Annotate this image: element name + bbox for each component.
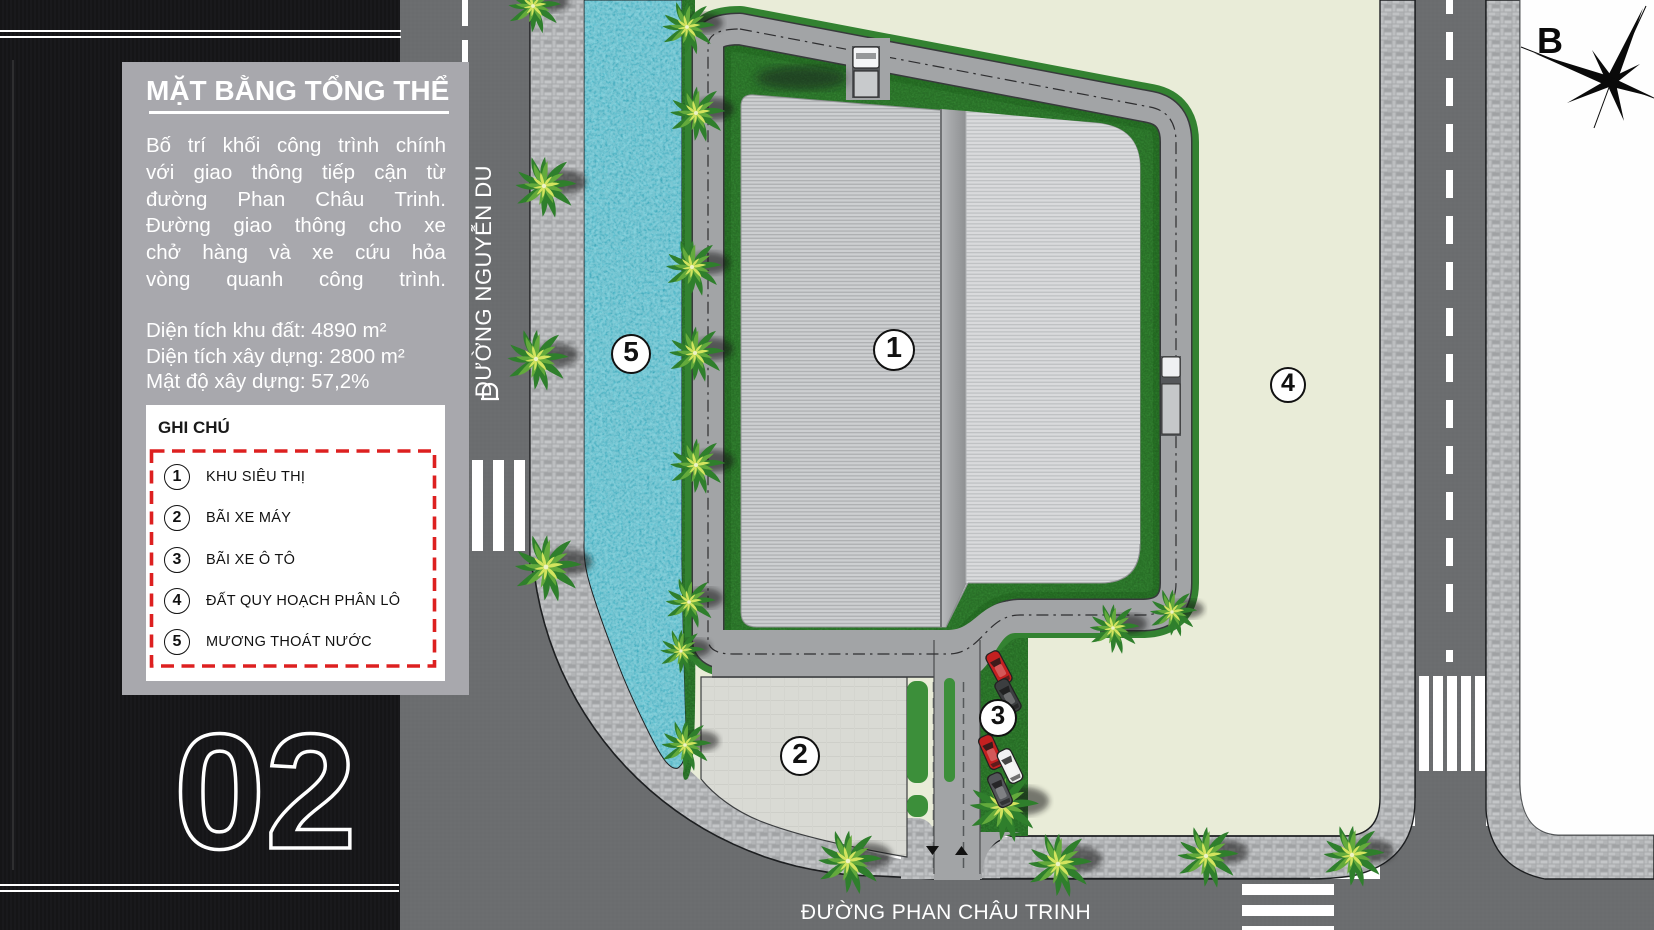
svg-text:ĐƯỜNG PHAN CHÂU TRINH: ĐƯỜNG PHAN CHÂU TRINH <box>801 901 1091 924</box>
svg-text:2: 2 <box>792 738 808 769</box>
svg-text:5: 5 <box>623 336 639 367</box>
svg-text:1: 1 <box>886 332 902 364</box>
svg-text:3: 3 <box>991 700 1005 730</box>
svg-text:ĐƯỜNG NGUYỄN DU: ĐƯỜNG NGUYỄN DU <box>470 165 496 397</box>
svg-text:4: 4 <box>1281 369 1295 397</box>
